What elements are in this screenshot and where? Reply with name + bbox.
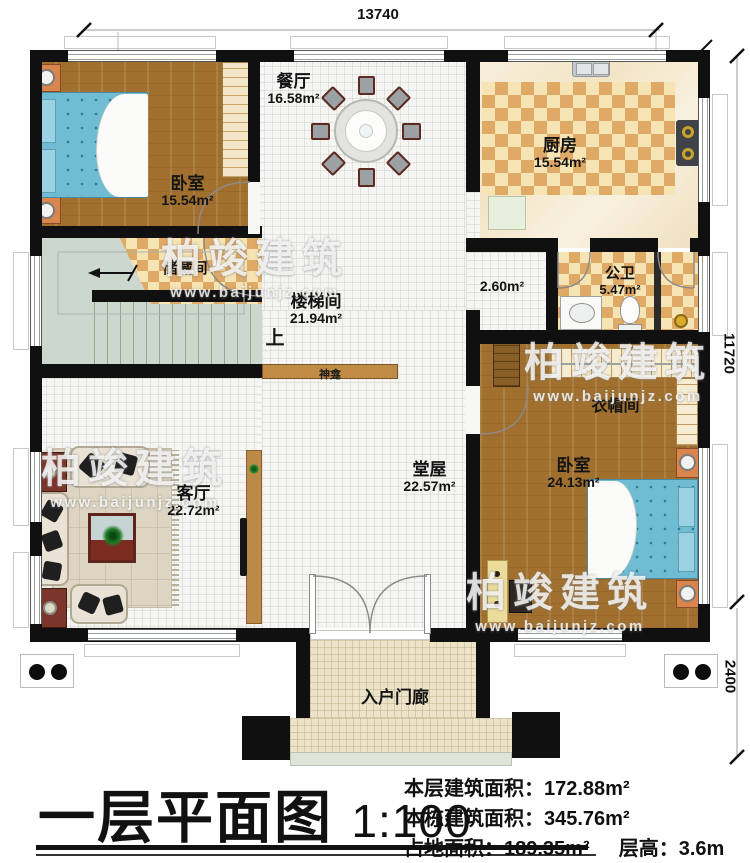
lamp-icon [679,585,696,602]
toilet [618,296,642,334]
wall [30,226,262,238]
dim-tick [730,595,744,609]
window [698,98,710,202]
window-sill [13,552,29,628]
window [30,256,42,346]
room-area: 22.72m² [136,503,251,519]
corridor-area-label: 2.60m² [462,279,542,295]
cloakroom-rack-right [676,378,698,446]
sink-basin [593,63,609,75]
room-name: 堂屋 [372,460,487,479]
stat-label: 层高： [619,838,679,860]
room-area: 21.94m² [262,311,370,327]
room-name: 餐厅 [236,72,351,91]
lamp-icon [43,465,57,479]
stat-value: 189.35m² [504,838,590,860]
bottle [494,571,500,577]
porch-floor-lower [290,718,512,752]
sofa-bottom [70,584,128,624]
wall [296,640,310,718]
window-sill [64,36,216,49]
room-area: 5.47m² [578,283,662,298]
window [698,256,710,332]
up-label: 上 [262,328,288,349]
window [30,556,42,624]
stat-label: 占地面积： [404,838,504,860]
window-sill [13,448,29,526]
tv-icon [240,518,247,576]
entry-door-leaf [309,574,316,634]
burner [682,148,694,160]
room-label-dining: 餐厅 16.58m² [236,72,351,107]
burner [682,126,694,138]
blanket [588,481,637,578]
room-name: 衣帽间 [568,398,663,416]
wall [466,238,558,252]
rug-fringe [172,450,179,606]
dim-tick [649,23,663,37]
wall [466,310,480,386]
wall [476,640,490,718]
room-label-living: 客厅 22.72m² [136,484,251,519]
dim-width-top: 13740 [336,6,420,23]
chair [358,76,375,95]
entry-threshold [310,630,430,640]
window-sill [712,94,728,206]
bed-bedroom2 [587,479,698,579]
room-name: 卧室 [130,174,245,193]
plant-icon [249,464,259,474]
chair [386,86,411,111]
fridge [488,196,526,230]
tv-panel [246,450,262,624]
wall [512,712,560,758]
console-table [487,560,508,623]
legend-dots [664,654,718,688]
room-area: 15.54m² [130,193,245,209]
sofa-cushion [77,591,101,615]
stairs-up-label: 上 [262,328,288,349]
room-label-stairwell: 楼梯间 21.94m² [262,292,370,327]
wash-basin [569,303,595,323]
stat-value: 172.88m² [544,778,630,800]
room-name: 入户门廊 [320,688,470,707]
wall-bottom [430,628,480,642]
room-name: 厨房 [500,136,620,155]
plant-icon [102,525,124,547]
shower-head-icon [674,314,688,328]
shrine-shelf: 神龛 [262,364,398,379]
chair [311,123,330,140]
kitchen-entry-floor [466,192,480,238]
rack-rod [551,363,699,365]
stat-value: 3.6m [679,838,725,860]
floor-plan: 神龛 [0,0,750,863]
cabinet-bedroom2 [493,338,520,387]
dot-icon [29,664,45,680]
bottle [494,601,500,607]
stove [676,120,700,166]
room-label-kitchen: 厨房 15.54m² [500,136,620,171]
room-label-storage: 储藏间 [145,261,225,278]
door-opening [466,386,480,434]
wall [242,716,290,760]
wall [466,330,702,344]
stat-floor-area: 本层建筑面积：172.88m² [404,772,630,801]
window-sill [712,444,728,608]
wall [92,290,262,302]
window [294,50,444,62]
lamp-icon [679,454,696,471]
pillow [678,532,695,572]
room-label-bathroom: 公卫 5.47m² [578,266,662,297]
dim-tick [730,750,744,764]
porch-step [290,752,512,766]
nightstand [676,580,700,608]
coffee-table [88,513,136,563]
chair [402,123,421,140]
room-label-bedroom1: 卧室 15.54m² [130,174,245,209]
stat-building-area: 本栋建筑面积：345.76m² [404,802,630,831]
wall-left [30,50,42,642]
room-name: 卧室 [516,456,631,475]
window-sill [13,252,29,350]
sink-basin [576,63,592,75]
dot-icon [673,664,689,680]
stat-footprint-height: 占地面积：189.35m² 层高：3.6m [404,832,724,861]
window [88,629,236,641]
chair [386,151,411,176]
stat-label: 本层建筑面积： [404,778,544,800]
nightstand [676,448,700,478]
shrine-label: 神龛 [319,369,341,381]
room-label-cloakroom: 衣帽间 [568,398,663,416]
room-area: 2.60m² [462,279,542,295]
room-name: 客厅 [136,484,251,503]
entry-door-leaf [424,574,431,634]
stat-value: 345.76m² [544,808,630,830]
room-label-bedroom2: 卧室 24.13m² [516,456,631,491]
chair [358,168,375,187]
window-sill [514,644,626,657]
sofa-cushion [78,452,106,480]
sofa-cushion [102,594,124,616]
window [30,452,42,522]
room-area: 24.13m² [516,475,631,491]
sofa-cushion [42,561,63,582]
dining-table-center [359,124,373,138]
dot-icon [695,664,711,680]
dim-tick [730,49,744,63]
window-sill [84,644,240,657]
window [698,448,710,604]
wall [546,252,558,336]
window [68,50,216,62]
wall [30,364,262,378]
dim-tick [77,23,91,37]
sofa-cushion [114,452,138,476]
sofa-cushion [40,529,63,552]
chair [321,151,346,176]
legend-dots [20,654,74,688]
lamp-icon [43,601,57,615]
window [508,50,666,62]
window-sill [290,36,448,49]
room-name: 公卫 [578,266,662,283]
wall [466,58,480,192]
room-area: 22.57m² [372,479,487,495]
dim-height-main: 11720 [721,314,738,394]
toilet-bowl [620,296,640,324]
dim-height-porch: 2400 [722,637,739,717]
pillow [678,487,695,527]
room-label-hall: 堂屋 22.57m² [372,460,487,495]
stair-treads [94,302,262,364]
room-area: 15.54m² [500,155,620,171]
room-name: 储藏间 [145,261,225,278]
tv-cabinet-bedroom2 [509,580,532,613]
wall [590,238,658,252]
dot-icon [51,664,67,680]
door-opening [248,182,260,234]
cloakroom-rack-top [550,348,698,378]
room-label-porch: 入户门廊 [320,688,470,707]
sofa-top [70,446,150,488]
room-area: 16.58m² [236,91,351,107]
window [518,629,622,641]
sofa-cushion [40,499,65,524]
window-sill [504,36,670,49]
room-name: 楼梯间 [262,292,370,311]
stat-label: 本栋建筑面积： [404,808,544,830]
bathroom-counter [560,296,602,330]
title-text: 一层平面图 [38,786,333,850]
